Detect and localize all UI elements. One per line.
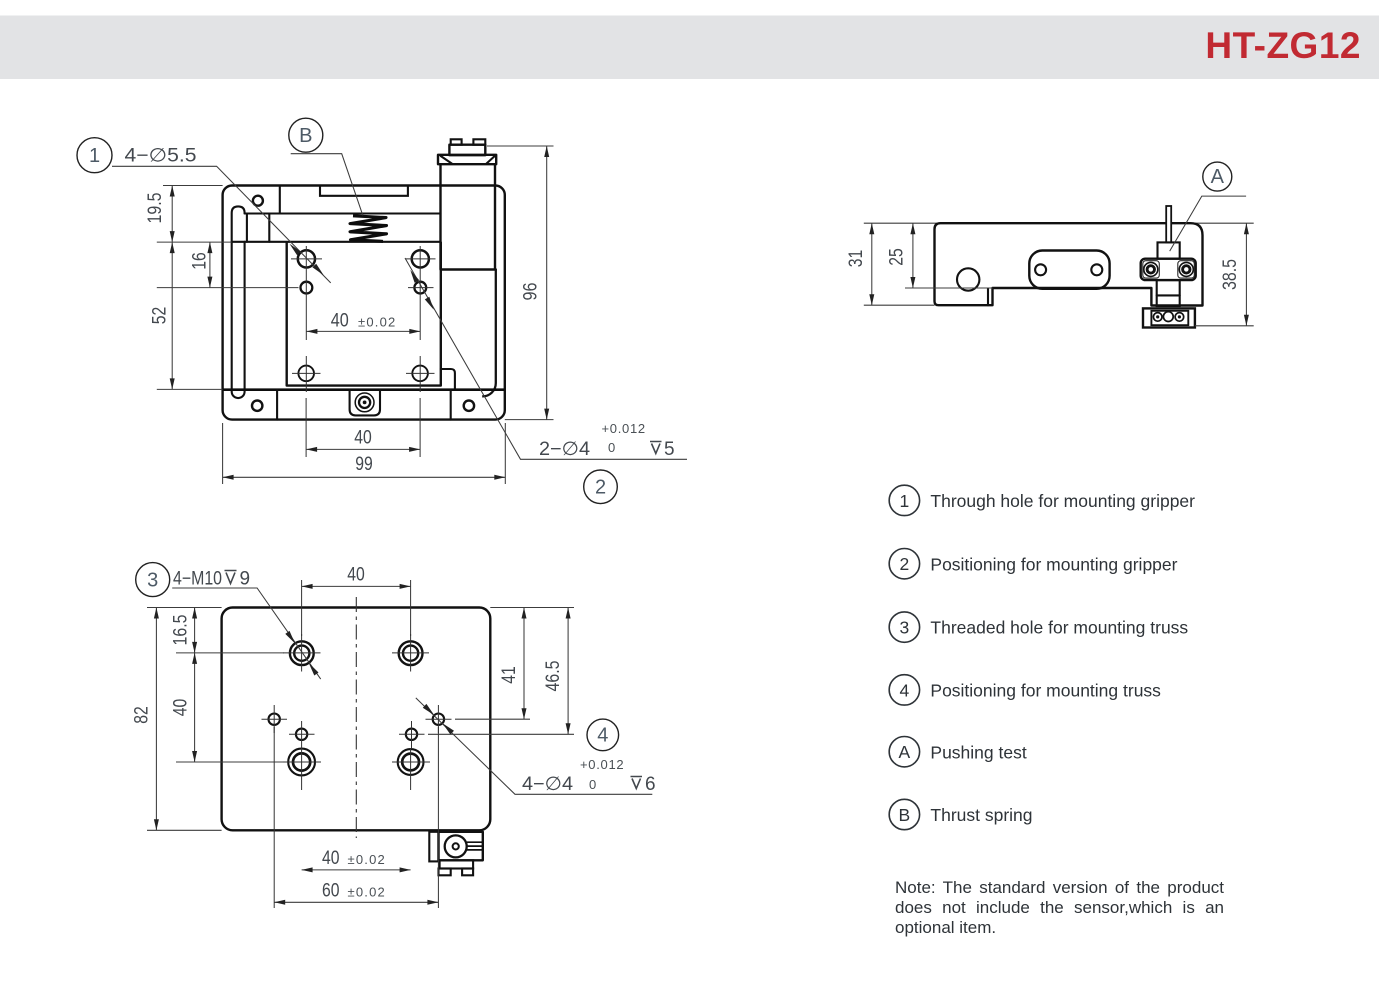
svg-text:±0.02: ±0.02 xyxy=(348,885,386,900)
svg-text:+0.012: +0.012 xyxy=(580,757,624,772)
svg-text:3: 3 xyxy=(147,570,158,592)
svg-text:B: B xyxy=(299,125,312,147)
svg-text:52: 52 xyxy=(150,307,171,325)
svg-text:4: 4 xyxy=(597,725,608,747)
svg-text:1: 1 xyxy=(900,491,910,511)
svg-text:60: 60 xyxy=(322,881,340,902)
svg-text:16: 16 xyxy=(190,252,211,270)
svg-text:41: 41 xyxy=(499,666,520,684)
svg-text:40: 40 xyxy=(347,565,365,586)
svg-text:Through hole for mounting grip: Through hole for mounting gripper xyxy=(930,491,1195,511)
svg-text:4−∅5.5: 4−∅5.5 xyxy=(125,146,197,167)
svg-text:46.5: 46.5 xyxy=(543,661,564,692)
svg-text:5: 5 xyxy=(664,439,675,460)
svg-text:Threaded hole for mounting tru: Threaded hole for mounting truss xyxy=(930,618,1188,638)
svg-text:31: 31 xyxy=(846,250,867,268)
svg-text:4: 4 xyxy=(900,680,910,700)
svg-text:2−∅4: 2−∅4 xyxy=(539,439,590,460)
svg-text:0: 0 xyxy=(589,777,596,792)
svg-text:2: 2 xyxy=(900,554,910,574)
svg-text:±0.02: ±0.02 xyxy=(358,315,396,330)
svg-text:A: A xyxy=(1211,166,1225,188)
svg-text:19.5: 19.5 xyxy=(145,193,166,224)
svg-text:99: 99 xyxy=(355,454,373,475)
svg-text:+0.012: +0.012 xyxy=(602,421,646,436)
svg-text:Positioning for mounting gripp: Positioning for mounting gripper xyxy=(930,554,1177,574)
svg-text:9: 9 xyxy=(240,569,251,590)
svg-text:HT-ZG12: HT-ZG12 xyxy=(1205,25,1361,66)
svg-text:82: 82 xyxy=(132,706,153,724)
svg-text:0: 0 xyxy=(608,440,615,455)
svg-text:A: A xyxy=(899,742,911,762)
svg-text:40: 40 xyxy=(171,699,192,717)
svg-text:96: 96 xyxy=(521,283,542,301)
svg-text:2: 2 xyxy=(595,477,606,499)
svg-text:1: 1 xyxy=(89,145,100,167)
svg-text:±0.02: ±0.02 xyxy=(348,852,386,867)
svg-text:40: 40 xyxy=(322,848,340,869)
svg-text:16.5: 16.5 xyxy=(171,615,192,646)
svg-text:40: 40 xyxy=(354,428,372,449)
svg-text:38.5: 38.5 xyxy=(1220,259,1241,290)
svg-text:40: 40 xyxy=(331,311,349,332)
svg-text:6: 6 xyxy=(645,774,656,795)
svg-text:4−M10: 4−M10 xyxy=(173,569,222,590)
svg-text:Pushing test: Pushing test xyxy=(930,742,1026,762)
svg-text:B: B xyxy=(899,805,911,825)
svg-text:Positioning for mounting truss: Positioning for mounting truss xyxy=(930,681,1161,701)
svg-text:4−∅4: 4−∅4 xyxy=(522,774,573,795)
svg-text:Thrust spring: Thrust spring xyxy=(930,805,1032,825)
svg-text:25: 25 xyxy=(887,248,908,266)
svg-text:3: 3 xyxy=(900,618,910,638)
